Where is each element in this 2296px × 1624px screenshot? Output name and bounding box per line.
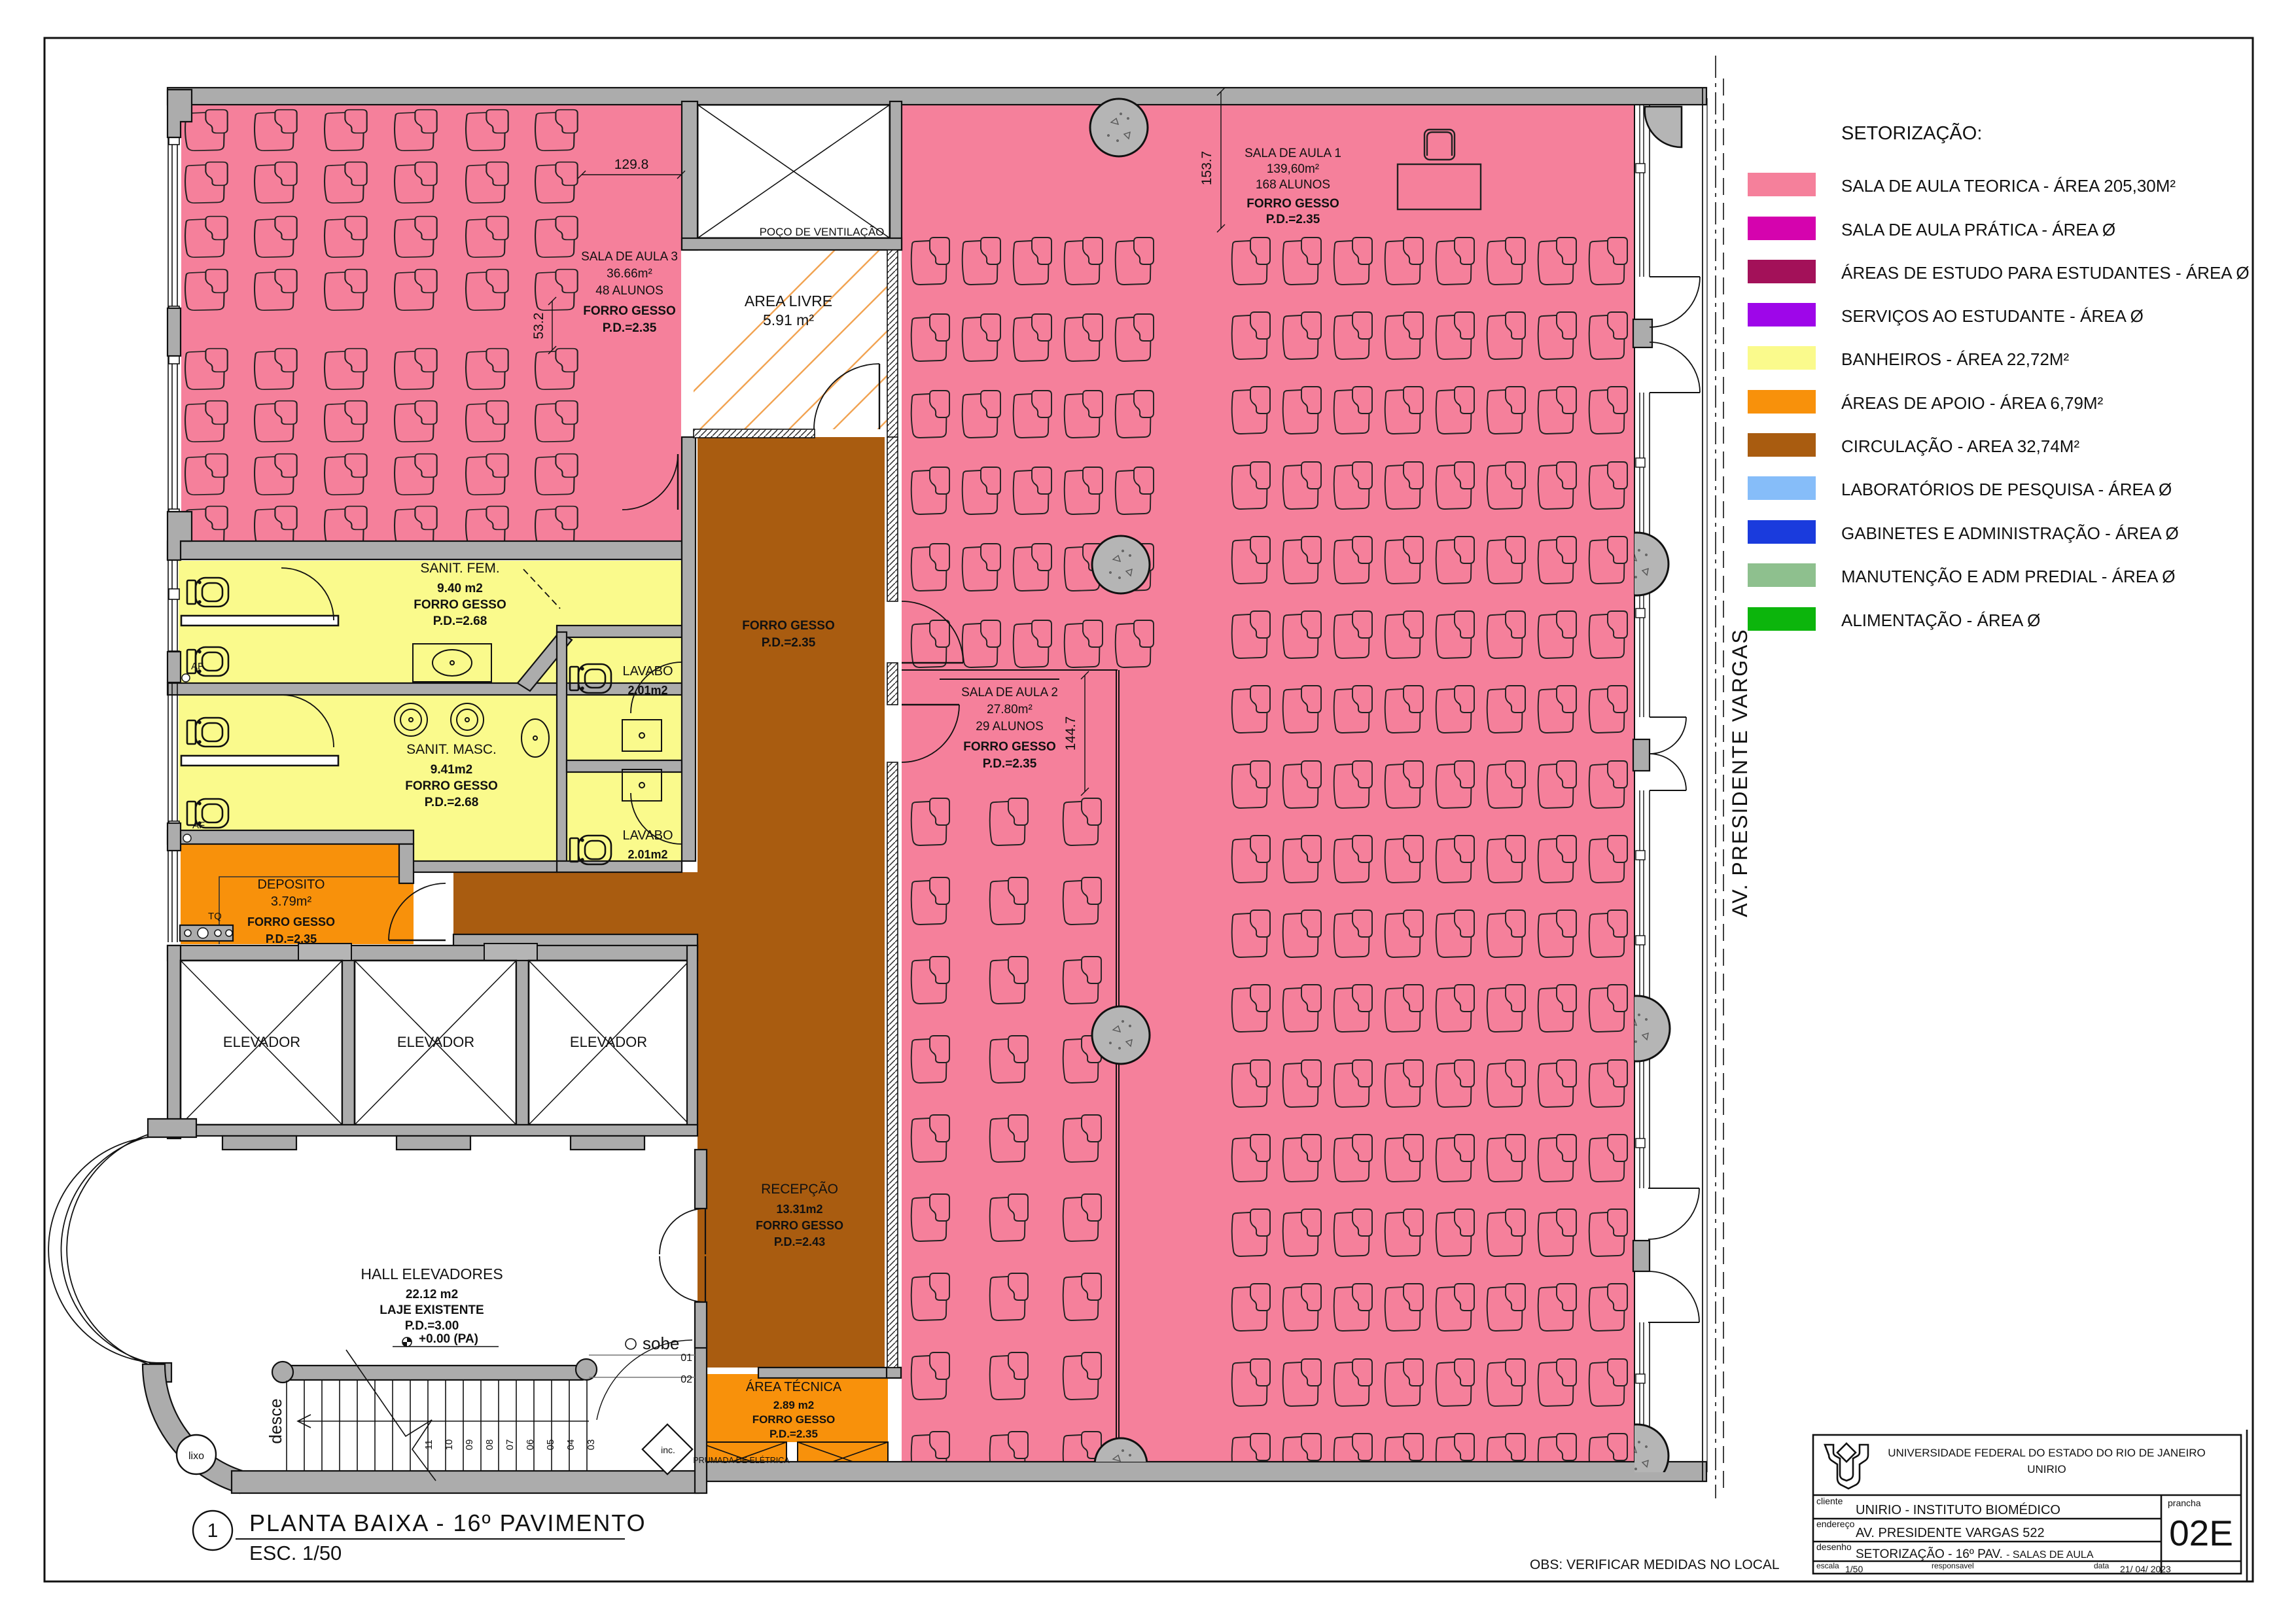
svg-text:SALA DE AULA 2: SALA DE AULA 2 — [961, 686, 1058, 699]
svg-text:13.31m2: 13.31m2 — [776, 1203, 822, 1216]
svg-text:FORRO GESSO: FORRO GESSO — [414, 598, 506, 612]
svg-text:ALIMENTAÇÃO - ÁREA Ø: ALIMENTAÇÃO - ÁREA Ø — [1841, 610, 2040, 630]
svg-text:lixo: lixo — [188, 1451, 204, 1462]
svg-text:LABORATÓRIOS DE PESQUISA - ÁRE: LABORATÓRIOS DE PESQUISA - ÁREA Ø — [1841, 480, 2172, 499]
svg-text:P.D.=2.35: P.D.=2.35 — [1266, 213, 1320, 226]
svg-text:168 ALUNOS: 168 ALUNOS — [1256, 178, 1330, 192]
svg-text:21/ 04/ 2023: 21/ 04/ 2023 — [2120, 1564, 2171, 1574]
svg-text:53.2: 53.2 — [531, 313, 546, 340]
svg-text:ÁREAS DE APOIO - ÁREA 6,79M²: ÁREAS DE APOIO - ÁREA 6,79M² — [1841, 393, 2104, 413]
svg-text:05: 05 — [545, 1439, 556, 1451]
svg-text:ELEVADOR: ELEVADOR — [397, 1034, 474, 1050]
svg-text:BANHEIROS - ÁREA 22,72M²: BANHEIROS - ÁREA 22,72M² — [1841, 349, 2070, 369]
svg-text:1: 1 — [207, 1520, 219, 1542]
svg-text:CIRCULAÇÃO - AREA 32,74M²: CIRCULAÇÃO - AREA 32,74M² — [1841, 436, 2079, 456]
svg-text:+0.00 (PA): +0.00 (PA) — [419, 1332, 478, 1346]
svg-text:07: 07 — [504, 1439, 516, 1451]
svg-text:endereço: endereço — [1816, 1519, 1855, 1529]
svg-text:129.8: 129.8 — [614, 157, 649, 172]
svg-text:06: 06 — [525, 1439, 536, 1451]
svg-text:P.D.=2.43: P.D.=2.43 — [774, 1235, 825, 1248]
svg-text:sobe: sobe — [643, 1333, 679, 1353]
svg-text:AREA LIVRE: AREA LIVRE — [745, 292, 832, 309]
svg-text:22.12 m2: 22.12 m2 — [406, 1288, 458, 1301]
svg-text:144.7: 144.7 — [1063, 716, 1078, 751]
svg-text:LAVABO: LAVABO — [622, 828, 673, 843]
svg-text:SERVIÇOS AO ESTUDANTE - ÁREA: SERVIÇOS AO ESTUDANTE - ÁREA Ø — [1841, 306, 2144, 326]
svg-text:FORRO GESSO: FORRO GESSO — [756, 1219, 843, 1232]
svg-text:LAVABO: LAVABO — [622, 664, 673, 679]
svg-text:139,60m²: 139,60m² — [1267, 162, 1319, 176]
svg-text:3.79m²: 3.79m² — [271, 894, 312, 909]
svg-text:03: 03 — [586, 1439, 597, 1451]
svg-text:MANUTENÇÃO E ADM PREDIAL - ÁRE: MANUTENÇÃO E ADM PREDIAL - ÁREA Ø — [1841, 567, 2175, 586]
svg-text:inc.: inc. — [661, 1445, 675, 1455]
svg-text:SALA DE AULA TEORICA - ÁREA 20: SALA DE AULA TEORICA - ÁREA 205,30M² — [1841, 176, 2176, 196]
svg-text:153.7: 153.7 — [1199, 151, 1214, 186]
svg-text:27.80m²: 27.80m² — [987, 703, 1033, 716]
svg-text:P.D.=2.35: P.D.=2.35 — [603, 321, 657, 335]
svg-text:P.D.=2.35: P.D.=2.35 — [769, 1428, 818, 1440]
svg-text:SETORIZAÇÃO:: SETORIZAÇÃO: — [1841, 122, 1982, 144]
svg-text:9.40 m2: 9.40 m2 — [437, 582, 483, 595]
svg-text:ÁREAS DE ESTUDO PARA ESTUDANTE: ÁREAS DE ESTUDO PARA ESTUDANTES - ÁREA Ø — [1841, 263, 2250, 283]
svg-text:48 ALUNOS: 48 ALUNOS — [595, 284, 663, 298]
svg-text:FORRO GESSO: FORRO GESSO — [583, 304, 675, 318]
svg-text:2.01m2: 2.01m2 — [627, 684, 667, 697]
svg-text:AF: AF — [191, 661, 203, 672]
svg-text:ELEVADOR: ELEVADOR — [570, 1034, 647, 1050]
svg-text:9.41m2: 9.41m2 — [431, 763, 472, 777]
svg-text:UNIRIO - INSTITUTO BIOMÉDICO: UNIRIO - INSTITUTO BIOMÉDICO — [1856, 1502, 2060, 1517]
svg-text:FORRO GESSO: FORRO GESSO — [247, 915, 335, 928]
svg-text:HALL ELEVADORES: HALL ELEVADORES — [361, 1265, 503, 1282]
svg-text:GABINETES E ADMINISTRAÇÃO - ÁR: GABINETES E ADMINISTRAÇÃO - ÁREA Ø — [1841, 523, 2179, 543]
svg-text:FORRO GESSO: FORRO GESSO — [752, 1413, 836, 1426]
svg-text:FORRO GESSO: FORRO GESSO — [1246, 197, 1339, 211]
svg-text:prancha: prancha — [2168, 1498, 2201, 1508]
svg-text:cliente: cliente — [1816, 1496, 1843, 1506]
svg-text:04: 04 — [565, 1439, 576, 1451]
svg-text:AF: AF — [192, 820, 205, 831]
svg-text:01: 01 — [680, 1352, 692, 1364]
svg-text:SALA DE AULA PRÁTICA - ÁREA Ø: SALA DE AULA PRÁTICA - ÁREA Ø — [1841, 220, 2115, 239]
svg-text:P.D.=3.00: P.D.=3.00 — [405, 1319, 459, 1333]
svg-text:ELEVADOR: ELEVADOR — [223, 1034, 300, 1050]
svg-text:AV. PRESIDENTE VARGAS: AV. PRESIDENTE VARGAS — [1728, 628, 1752, 917]
svg-text:29 ALUNOS: 29 ALUNOS — [976, 720, 1044, 733]
svg-text:2.89 m2: 2.89 m2 — [773, 1399, 814, 1411]
svg-text:SANIT. MASC.: SANIT. MASC. — [406, 742, 497, 757]
svg-text:data: data — [2094, 1561, 2110, 1570]
svg-text:08: 08 — [484, 1439, 495, 1451]
svg-text:SETORIZAÇÃO - 16º PAV. - SALAS: SETORIZAÇÃO - 16º PAV. - SALAS DE AULA — [1856, 1547, 2094, 1561]
svg-text:AV. PRESIDENTE VARGAS 522: AV. PRESIDENTE VARGAS 522 — [1856, 1526, 2045, 1540]
svg-text:SALA DE AULA 1: SALA DE AULA 1 — [1245, 147, 1341, 160]
svg-text:5.91 m²: 5.91 m² — [763, 311, 814, 328]
svg-text:P.D.=2.68: P.D.=2.68 — [425, 796, 479, 809]
svg-text:P.D.=2.68: P.D.=2.68 — [433, 614, 487, 628]
svg-text:POÇO DE VENTILAÇÃO: POÇO DE VENTILAÇÃO — [760, 226, 885, 238]
svg-text:LAJE EXISTENTE: LAJE EXISTENTE — [380, 1303, 484, 1317]
svg-text:RECEPÇÃO: RECEPÇÃO — [761, 1181, 838, 1197]
svg-text:11: 11 — [423, 1439, 434, 1450]
svg-text:PLANTA BAIXA - 16º PAVIMENTO: PLANTA BAIXA - 16º PAVIMENTO — [249, 1509, 646, 1536]
svg-text:responsavel: responsavel — [1932, 1561, 1974, 1570]
svg-text:P.D.=2.35: P.D.=2.35 — [762, 636, 816, 650]
svg-text:desce: desce — [266, 1398, 285, 1443]
svg-text:02: 02 — [680, 1374, 692, 1385]
svg-text:02E: 02E — [2169, 1513, 2233, 1553]
svg-text:UNIVERSIDADE FEDERAL DO EST: UNIVERSIDADE FEDERAL DO ESTADO DO RIO DE… — [1888, 1447, 2206, 1459]
svg-text:ÁREA TÉCNICA: ÁREA TÉCNICA — [746, 1379, 842, 1394]
svg-text:2.01m2: 2.01m2 — [627, 848, 667, 861]
svg-text:36.66m²: 36.66m² — [607, 267, 652, 281]
svg-text:1/50: 1/50 — [1845, 1564, 1863, 1574]
svg-text:FORRO GESSO: FORRO GESSO — [405, 779, 497, 793]
svg-text:UNIRIO: UNIRIO — [2027, 1463, 2066, 1475]
svg-text:SANIT. FEM.: SANIT. FEM. — [420, 561, 499, 576]
svg-text:FORRO GESSO: FORRO GESSO — [963, 740, 1055, 754]
svg-text:TQ: TQ — [208, 911, 222, 922]
svg-text:PRUMADA DE ELÉTRICA: PRUMADA DE ELÉTRICA — [693, 1455, 790, 1465]
svg-text:desenho: desenho — [1816, 1542, 1852, 1552]
svg-text:FORRO GESSO: FORRO GESSO — [742, 619, 834, 633]
svg-text:ESC. 1/50: ESC. 1/50 — [249, 1542, 342, 1564]
svg-text:09: 09 — [464, 1439, 475, 1451]
svg-text:P.D.=2.35: P.D.=2.35 — [266, 932, 317, 945]
svg-text:10: 10 — [444, 1439, 455, 1451]
svg-text:escala: escala — [1816, 1561, 1839, 1570]
svg-text:OBS: VERIFICAR MEDIDAS NO LOCA: OBS: VERIFICAR MEDIDAS NO LOCAL — [1530, 1557, 1780, 1572]
svg-text:DEPOSITO: DEPOSITO — [258, 877, 325, 892]
svg-text:SALA DE AULA 3: SALA DE AULA 3 — [581, 250, 678, 264]
svg-text:P.D.=2.35: P.D.=2.35 — [983, 757, 1037, 771]
